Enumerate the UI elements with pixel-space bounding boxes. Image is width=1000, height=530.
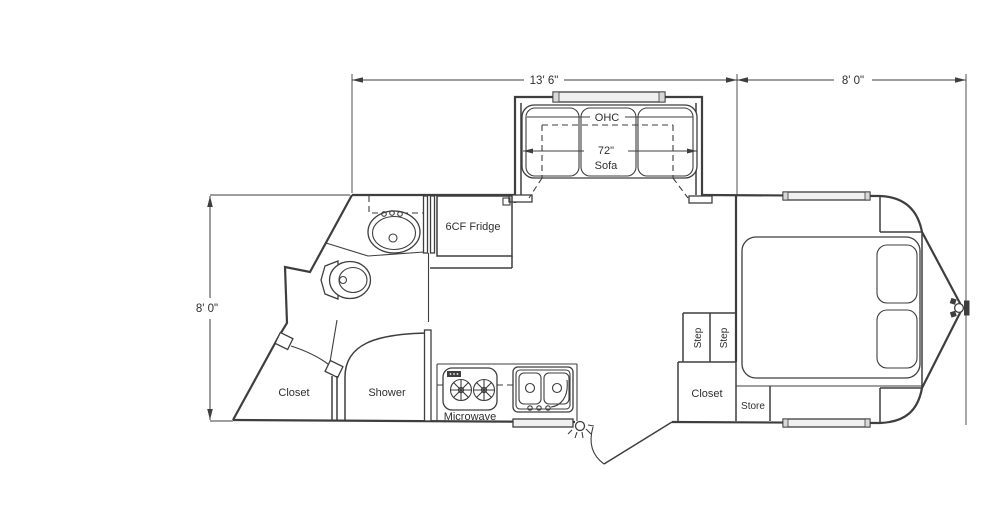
sofa-label: Sofa: [595, 160, 619, 172]
burner-right: [474, 380, 495, 401]
fridge: 6CF Fridge: [430, 196, 512, 268]
entry-door: [568, 422, 672, 465]
bath-ohc-dashed: [369, 196, 430, 213]
cooktop: [443, 368, 497, 410]
closet-door-leaf: [330, 320, 337, 362]
pocket-door: [424, 196, 435, 322]
sofa-width-label: 72": [598, 145, 614, 157]
store-label: Store: [741, 401, 765, 412]
closet-rear-label: Closet: [278, 387, 309, 399]
store-compartment: Store: [741, 386, 770, 421]
sofa-slideout: OHC 72" Sofa: [509, 92, 712, 203]
slide-window: [553, 92, 665, 102]
shower-label: Shower: [368, 387, 406, 399]
step-2-label: Step: [719, 327, 730, 348]
bathroom: [321, 196, 435, 322]
slide-stop-right: [689, 196, 712, 203]
bath-sink: [368, 211, 420, 253]
closet-door-stop-left: [275, 333, 293, 350]
bedroom-window-bottom: [783, 419, 870, 427]
toilet: [321, 261, 371, 299]
floorplan-page: 13' 6" 8' 0" 8' 0": [0, 0, 1000, 530]
closet-bedroom: Closet: [678, 362, 736, 421]
dimension-main-length: 13' 6": [530, 75, 559, 87]
closet-rear: Closet: [275, 320, 343, 421]
shower: Shower: [345, 330, 431, 421]
microwave-label: Microwave: [444, 411, 497, 423]
step-1-label: Step: [693, 327, 704, 348]
fridge-label: 6CF Fridge: [445, 221, 500, 233]
floorplan-svg: 13' 6" 8' 0" 8' 0": [0, 0, 1000, 530]
steps: Step Step: [683, 313, 736, 362]
entry-door-leaf: [604, 422, 672, 464]
closet-bedroom-label: Closet: [691, 388, 722, 400]
ohc-label: OHC: [595, 112, 620, 124]
dimension-front-length: 8' 0": [842, 75, 864, 87]
kitchen-sink: [513, 367, 573, 412]
bed: [742, 237, 920, 378]
kitchen-window: [513, 419, 573, 427]
entry-door-swing: [591, 427, 604, 464]
burner-left: [451, 380, 472, 401]
bedroom-window-top: [783, 192, 870, 200]
bedroom: Step Step Closet Store: [678, 192, 970, 427]
dimension-width: 8' 0": [196, 303, 218, 315]
kitchen: Microwave: [437, 364, 577, 427]
closet-door-stop-right: [325, 361, 343, 378]
closet-front: [291, 346, 328, 364]
